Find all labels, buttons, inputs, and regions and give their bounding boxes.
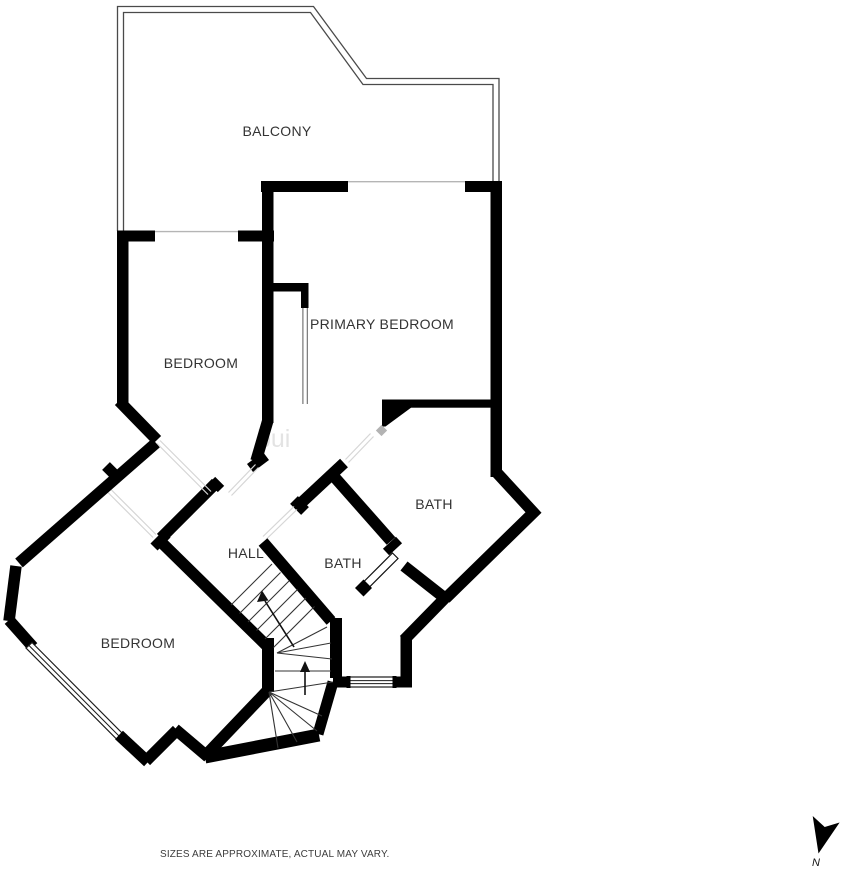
- svg-text:BEDROOM: BEDROOM: [164, 355, 238, 371]
- svg-text:BATH: BATH: [324, 555, 362, 571]
- svg-text:N: N: [812, 857, 820, 869]
- svg-text:PRIMARY BEDROOM: PRIMARY BEDROOM: [310, 316, 454, 332]
- svg-text:SIZES ARE APPROXIMATE, ACTUAL: SIZES ARE APPROXIMATE, ACTUAL MAY VARY.: [160, 849, 389, 860]
- svg-text:BALCONY: BALCONY: [242, 123, 311, 139]
- svg-text:BATH: BATH: [415, 496, 453, 512]
- svg-text:BEDROOM: BEDROOM: [101, 635, 175, 651]
- svg-text:HALL: HALL: [228, 545, 264, 561]
